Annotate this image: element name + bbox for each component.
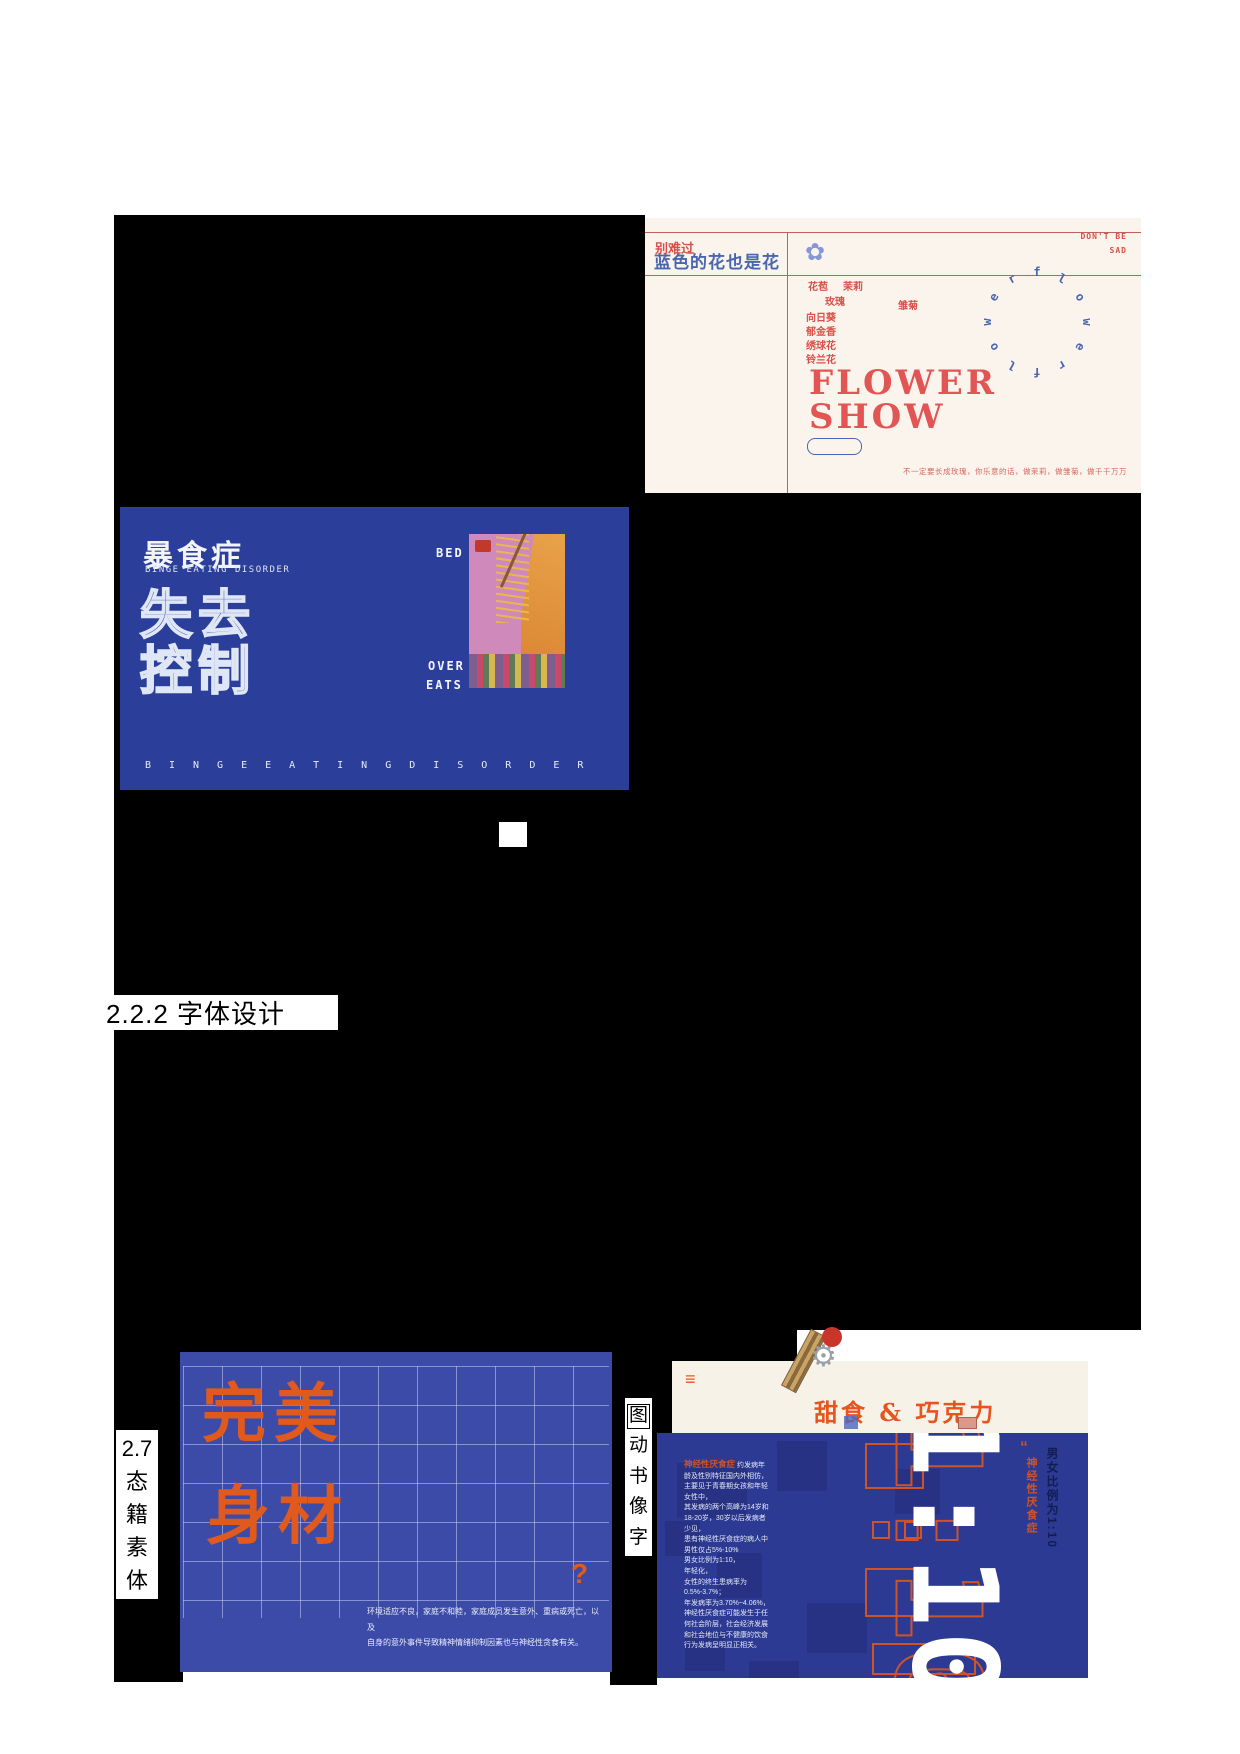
perfect-figure-poster: 完美 身材 ? 环境适应不良，家庭不和睦，家庭成员发生意外、重病或死亡，以及 自… (180, 1352, 612, 1672)
ring-letter: r (1005, 271, 1018, 287)
corner-caption: DON'T BE SAD (1080, 230, 1127, 259)
ring-letter: f (1033, 365, 1040, 379)
poster-footer-note: 不一定要长成玫瑰，你乐意的话，做茉莉，做雏菊，做千千万万 (903, 466, 1127, 477)
corner-caption-line1: DON'T BE (1080, 230, 1127, 244)
black-block-right (638, 493, 1141, 1330)
poster-caption: 环境适应不良，家庭不和睦，家庭成员发生意外、重病或死亡，以及 自身的意外事件导致… (367, 1604, 603, 1651)
poster-top-rule (645, 232, 1141, 233)
ring-letter: r (1055, 357, 1068, 373)
poster-subtitle-red: 别难过 (655, 238, 694, 257)
question-mark: ? (571, 1558, 588, 1590)
caption-number: 2.7 (116, 1432, 158, 1465)
section-heading: 2.2.2 字体设计 (106, 994, 285, 1031)
paragraph-first-line: 约发病年 (737, 1462, 765, 1469)
caption-char: 动 (625, 1431, 652, 1461)
ring-letter: w (980, 318, 994, 325)
poster-big-word-2: SHOW (809, 400, 945, 434)
flower-show-poster: 别难过 蓝色的花也是花 DON'T BE SAD ✿ 花苞 茉莉 玫瑰 雏菊 向… (645, 218, 1141, 493)
caption-line1: 环境适应不良，家庭不和睦，家庭成员发生意外、重病或死亡，以及 (367, 1604, 603, 1635)
outline-word-2: 控制 (140, 629, 256, 704)
sweets-chocolate-banner: ≡ ⚙ 甜食 & 巧克力 (672, 1361, 1088, 1433)
caption-char-boxed: 图 (627, 1404, 650, 1429)
ring-letter: l (1005, 357, 1018, 373)
corner-caption-line2: SAD (1080, 244, 1127, 258)
flower-name: 向日葵 (806, 309, 836, 324)
ring-letter: f (1033, 265, 1040, 279)
flower-name: 郁金香 (806, 323, 836, 338)
pixel-word-1: 完美 (202, 1382, 346, 1446)
label-bed: BED (436, 546, 464, 560)
white-square-marker (499, 822, 527, 847)
flower-name: 雏菊 (898, 297, 918, 312)
flower-name: 玫瑰 (825, 293, 845, 308)
speech-bubble (475, 540, 491, 552)
ring-letter: l (1055, 271, 1068, 287)
caption-line2: 自身的意外事件导致精神情绪抑制因素也与神经性贪食有关。 (367, 1635, 603, 1651)
document-page: 别难过 蓝色的花也是花 DON'T BE SAD ✿ 花苞 茉莉 玫瑰 雏菊 向… (0, 0, 1240, 1754)
black-tab-above-sweets (645, 1330, 797, 1363)
ratio-big-text: 1:10 (880, 1434, 1030, 1679)
caption-char: 素 (116, 1531, 158, 1564)
caption-char: 字 (625, 1523, 652, 1553)
label-eats: EATS (426, 678, 463, 692)
poster-button-outline[interactable] (807, 438, 862, 455)
ring-letter: e (986, 290, 1002, 303)
ring-letter: o (1072, 290, 1088, 303)
flower-icon: ✿ (805, 238, 825, 267)
menu-icon[interactable]: ≡ (685, 1369, 696, 1390)
candy-sprite (958, 1417, 977, 1429)
flower-name: 花苞 (808, 278, 828, 293)
black-block-mid-left (114, 790, 645, 1352)
flower-name: 茉莉 (843, 278, 863, 293)
left-vertical-caption: 2.7 态 籍 素 体 (116, 1430, 158, 1599)
poster-paragraph: 神经性厌食症 约发病年 龄及性别特征国内外相仿， 主要见于青春期女孩和年轻 女性… (684, 1459, 776, 1652)
paragraph-title: 神经性厌食症 (684, 1459, 735, 1469)
caption-char: 书 (625, 1462, 652, 1492)
side-caption-dark: 男女比例为1:10 (1044, 1447, 1061, 1549)
spaced-footer-text: BINGEEATINGDISORDER (145, 760, 601, 771)
cherry-art (822, 1327, 842, 1347)
paragraph-body: 龄及性别特征国内外相仿， 主要见于青春期女孩和年轻 女性中， 其发病的两个高峰为… (684, 1472, 776, 1652)
blue-pixel-sprite (844, 1416, 858, 1429)
center-vertical-caption: 图 动 书 像 字 (625, 1398, 652, 1556)
poster-big-word-1: FLOWER (809, 366, 997, 400)
ratio-poster: 1:10 1:10 神经性厌食症 约发病年 龄及性别特征国内外相仿， 主要见于青… (657, 1433, 1088, 1678)
caption-char: 体 (116, 1564, 158, 1597)
section-heading-band: 2.2.2 字体设计 (106, 995, 338, 1030)
caption-char: 籍 (116, 1498, 158, 1531)
circular-flower-text: f l o w e r f l o w e r (977, 264, 1097, 380)
poster-column-rule (787, 232, 788, 493)
noodle-art-strands (496, 534, 529, 623)
ring-letter: w (1080, 318, 1094, 325)
pixel-noodles-image (469, 534, 565, 688)
pixel-word-2: 身材 (206, 1484, 350, 1548)
caption-char: 像 (625, 1492, 652, 1522)
label-over: OVER (428, 659, 465, 673)
flower-name: 绣球花 (806, 337, 836, 352)
ring-letter: e (1072, 340, 1088, 353)
ring-letter: o (986, 340, 1002, 353)
caption-char: 态 (116, 1465, 158, 1498)
binge-eating-poster: 暴食症 BINGE EATING DISORDER 失去 控制 BED OVER… (120, 507, 629, 790)
noodle-art-border (469, 654, 565, 688)
